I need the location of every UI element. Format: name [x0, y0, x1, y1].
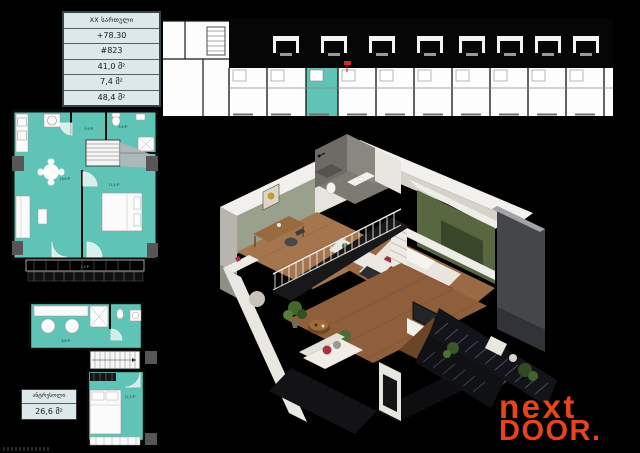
- total-area: 48,4 მ²: [64, 91, 159, 106]
- main-floor-plan: 19,6 მ² 5,6 მ² 3,6 მ² 11,4 მ² 7,4 მ²: [10, 108, 160, 274]
- nextdoor-logo: next DOOR.: [499, 393, 614, 444]
- bed: [102, 193, 142, 231]
- mez-column-bottom: [145, 433, 157, 445]
- balcony-area: 7,4 მ²: [64, 75, 159, 91]
- strip-core-mass: [229, 19, 613, 68]
- mez-bedroom-area-label: 11,2 მ²: [124, 395, 136, 399]
- mez-column-top: [145, 351, 157, 364]
- unit-number: #823: [64, 44, 159, 60]
- mez-stairs: [90, 351, 140, 369]
- bath-area-label: 3,6 მ²: [118, 125, 128, 129]
- mezzanine-label-box: ანტრესოლი 26,6 მ²: [21, 389, 77, 420]
- mezzanine-floor-plan: 8,8 მ²: [10, 268, 160, 447]
- logo-line-door: DOOR.: [499, 420, 614, 444]
- mez-bath-area-label: 8,8 მ²: [61, 339, 71, 343]
- floor-lamp: [249, 291, 265, 307]
- mezzanine-area: 26,6 მ²: [22, 404, 76, 419]
- floor-label: XX სართული: [64, 13, 159, 29]
- elevation-label: +78.30: [64, 29, 159, 45]
- strip-stairs: [207, 27, 225, 55]
- mezzanine-title: ანტრესოლი: [22, 390, 76, 404]
- desk-chair: [285, 238, 298, 247]
- render-right-wall-panel: [492, 206, 545, 352]
- hall-area-label: 5,6 მ²: [84, 127, 94, 131]
- building-floor-strip: [163, 19, 613, 116]
- mez-bathroom: 8,8 მ²: [30, 303, 142, 349]
- watermark: [3, 447, 49, 451]
- page: XX სართული +78.30 #823 41,0 მ² 7,4 მ² 48…: [0, 0, 640, 453]
- mez-bedroom: 11,2 მ²: [88, 371, 157, 445]
- mez-bottom-hatch: [90, 437, 140, 445]
- void-hatch: [28, 272, 143, 281]
- apartment-info-table: XX სართული +78.30 #823 41,0 მ² 7,4 მ² 48…: [62, 11, 161, 107]
- living-area-label: 19,6 მ²: [59, 177, 71, 181]
- bedroom-area-label: 11,4 მ²: [108, 183, 120, 187]
- net-area: 41,0 მ²: [64, 60, 159, 76]
